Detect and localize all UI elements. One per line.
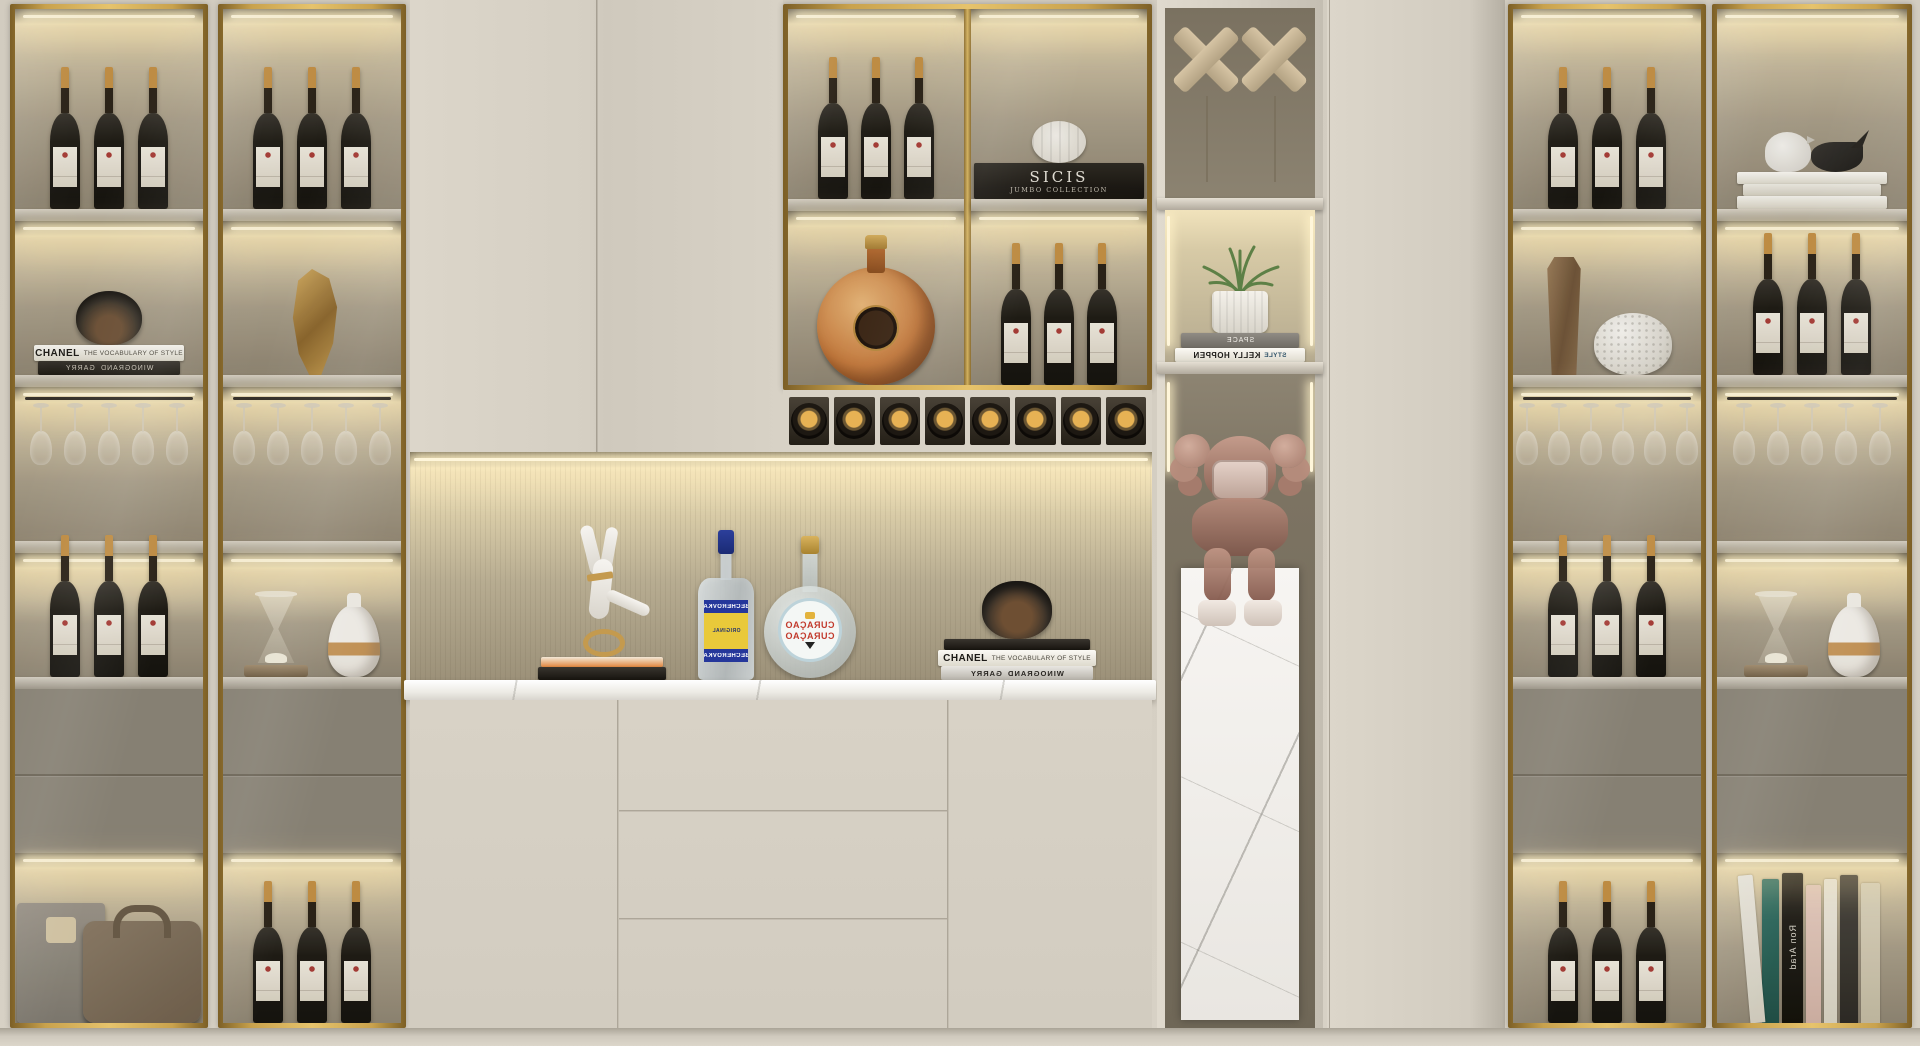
book-ron-arad: Ron Arad [1782, 873, 1803, 1023]
wine-bottle [1592, 927, 1622, 1023]
black-bird [1811, 142, 1863, 172]
shelf-board [223, 209, 401, 221]
niche-plant: SPACE KELLY HOPPENSTYLE [1165, 210, 1315, 362]
led-strip [1725, 859, 1899, 862]
book-orange [541, 657, 663, 667]
shelf-board [971, 199, 1147, 211]
wine-glass [1515, 401, 1539, 493]
wine-bottle [1087, 289, 1117, 385]
book-title: WINOGRAND [100, 365, 153, 372]
led-strip [231, 859, 393, 862]
led-strip [1310, 216, 1313, 346]
curacao-bottle: CURAÇAO CURAÇAO [762, 530, 858, 680]
sicis-book-group: SICISJUMBO COLLECTION [974, 121, 1144, 199]
led-strip [231, 559, 393, 562]
shelf-compartment-decor: CHANELTHE VOCABULARY OF STYLE GARRYWINOG… [15, 221, 203, 380]
wine-rack-slot [834, 397, 874, 445]
book-title: GARRY [65, 365, 95, 372]
led-strip [1725, 15, 1899, 18]
led-strip [414, 458, 1148, 461]
led-strip [231, 393, 393, 396]
shelf-board [1513, 375, 1701, 387]
wine-glass [97, 401, 121, 493]
hourglass [1753, 591, 1799, 675]
book-black: GARRYWINOGRAND [38, 361, 180, 375]
shelf-compartment-books-birds [1717, 9, 1907, 214]
shelf-compartment-wine [223, 9, 401, 214]
wine-glass [368, 401, 392, 493]
drawer-panel [223, 689, 401, 858]
white-gold-vase [328, 605, 380, 677]
wine-glass [232, 401, 256, 493]
hutch-column-right: SICISJUMBO COLLECTION [971, 9, 1147, 385]
shelf-board [223, 541, 401, 553]
wine-glass [1579, 401, 1603, 493]
book-chanel: CHANELTHE VOCABULARY OF STYLE [34, 345, 184, 361]
wine-bottle [1044, 289, 1074, 385]
drawer-seam [1717, 774, 1907, 776]
book-title: SICIS [1030, 168, 1089, 186]
bar-cabinet-wall: CHANELTHE VOCABULARY OF STYLE GARRYWINOG… [0, 0, 1920, 1046]
shelf-compartment-book: SICISJUMBO COLLECTION [971, 9, 1147, 204]
glass-rail [1727, 397, 1897, 400]
shelf-board [788, 199, 964, 211]
open-shelf-tower: SPACE KELLY HOPPENSTYLE [1157, 0, 1323, 1028]
led-strip [1725, 559, 1899, 562]
wine-glass [1732, 401, 1756, 493]
wine-bottle [297, 927, 327, 1023]
wine-bottle [253, 927, 283, 1023]
book-title: GARRY [970, 669, 1002, 678]
becherovka-bottle: BECHEROVKA ORIGINAL BECHEROVKA [698, 530, 754, 680]
wine-glass [1643, 401, 1667, 493]
label-variant: ORIGINAL [712, 628, 740, 634]
shelf-compartment-cognac [788, 211, 964, 385]
led-strip [1521, 227, 1693, 230]
gold-mask-sculpture [279, 269, 345, 375]
display-cabinet-left-2 [218, 4, 406, 1028]
book-title: CHANEL [35, 348, 80, 359]
display-hutch-center: SICISJUMBO COLLECTION [783, 4, 1152, 390]
plant-leaves [1192, 241, 1288, 297]
shelf-board [1717, 375, 1907, 387]
wine-bottle [1636, 581, 1666, 677]
book-garry-winogrand: GARRYWINOGRAND [941, 666, 1093, 680]
shelf-board [1157, 362, 1323, 374]
display-cabinet-right-1 [1508, 4, 1706, 1028]
wine-bottle [1636, 927, 1666, 1023]
wine-rack-slot [789, 397, 829, 445]
wine-bottle [818, 103, 848, 199]
wine-bottle [1592, 113, 1622, 209]
wine-bottle [1548, 113, 1578, 209]
shelf-compartment-decor [1513, 221, 1701, 380]
book-kelly-hoppen: KELLY HOPPENSTYLE [1175, 348, 1305, 362]
leather-briefcase [83, 921, 201, 1023]
wine-bottle [341, 927, 371, 1023]
wine-rack-slot [970, 397, 1010, 445]
book-spine [1824, 879, 1837, 1023]
plant-on-books: SPACE KELLY HOPPENSTYLE [1175, 241, 1305, 362]
cabinet-interior: CHANELTHE VOCABULARY OF STYLE GARRYWINOG… [15, 9, 203, 1023]
bronze-pitcher [1542, 257, 1586, 375]
wine-bottle [138, 581, 168, 677]
wine-glass [266, 401, 290, 493]
drawer-seam [15, 774, 203, 776]
book-title: KELLY HOPPEN [1193, 351, 1260, 360]
hourglass-group [1744, 591, 1808, 677]
led-strip [23, 15, 195, 18]
led-strip [23, 859, 195, 862]
niche-x-decor [1165, 8, 1315, 212]
wine-bottle [1636, 113, 1666, 209]
book-subtitle: THE VOCABULARY OF STYLE [992, 655, 1091, 662]
wine-bottle [1753, 279, 1783, 375]
cognac-bottle [815, 237, 937, 385]
wine-rack-slot [1015, 397, 1055, 445]
wine-glass [165, 401, 189, 493]
drawer-seam [223, 774, 401, 776]
bottle-label: BECHEROVKA ORIGINAL BECHEROVKA [704, 600, 748, 662]
shelf-compartment-wine [1513, 553, 1701, 682]
bird-figurines [1737, 126, 1887, 172]
wine-glass [300, 401, 324, 493]
wine-bottle [1548, 927, 1578, 1023]
wine-glass [1675, 401, 1699, 493]
marble-countertop [404, 680, 1156, 700]
stemware-rack [1717, 387, 1907, 560]
upper-cabinet-doors [410, 0, 783, 452]
book-title: Ron Arad [1788, 925, 1798, 971]
plant-pot [1212, 291, 1268, 333]
shelf-compartment-wine [971, 211, 1147, 385]
book-stack: CHANELTHE VOCABULARY OF STYLE GARRYWINOG… [34, 291, 184, 375]
wine-glass [334, 401, 358, 493]
book-title: CHANEL [943, 653, 988, 664]
glass-rail [25, 397, 193, 400]
drawer-panel [15, 689, 203, 858]
cabinet-seam [617, 700, 619, 1028]
wine-bottle [1592, 581, 1622, 677]
led-strip [1521, 15, 1693, 18]
led-strip [1167, 216, 1170, 346]
cabinet-interior [1513, 9, 1701, 1023]
wine-bottle [341, 113, 371, 209]
book-title: SPACE [1226, 337, 1254, 344]
niche-art-figure [1165, 374, 1315, 1028]
gold-mullion [964, 9, 971, 385]
book-chanel: CHANELTHE VOCABULARY OF STYLE [938, 650, 1096, 666]
led-strip [23, 393, 195, 396]
book-accent: STYLE [1264, 352, 1286, 359]
book-sicis: SICISJUMBO COLLECTION [974, 163, 1144, 199]
bottle-label: CURAÇAO CURAÇAO [778, 598, 842, 662]
book-white [1743, 184, 1881, 196]
wine-bottle [297, 113, 327, 209]
drawer-panel [1513, 689, 1701, 858]
led-strip [1167, 382, 1170, 472]
wine-bottle [904, 103, 934, 199]
shelf-board [1513, 209, 1701, 221]
shelf-board [15, 677, 203, 689]
wine-glass [63, 401, 87, 493]
display-cabinet-left-1: CHANELTHE VOCABULARY OF STYLE GARRYWINOG… [10, 4, 208, 1028]
bottle-cap [718, 530, 734, 554]
label-brand: BECHEROVKA [704, 653, 748, 659]
shelf-compartment-decor [223, 221, 401, 380]
shelf-compartment-books: Ron Arad [1717, 853, 1907, 1023]
book-white [1737, 196, 1887, 209]
shelf-board [1157, 198, 1323, 210]
wine-rack-slot [1106, 397, 1146, 445]
bar-alcove: BECHEROVKA ORIGINAL BECHEROVKA CURAÇAO C… [410, 452, 1152, 680]
floor-plinth [0, 1028, 1920, 1046]
label-line: CURAÇAO [785, 620, 835, 630]
book-spine [1840, 875, 1858, 1023]
bottle-neck [721, 554, 732, 580]
cabinet-seam [947, 700, 949, 1028]
book-space: SPACE [1181, 333, 1299, 348]
wine-glass [1766, 401, 1790, 493]
led-strip [1725, 227, 1899, 230]
book-white [1737, 172, 1887, 184]
textured-vase [1594, 313, 1672, 375]
book-black [538, 667, 666, 680]
book-title: WINOGRAND [1007, 669, 1064, 678]
drawer-panel [1717, 689, 1907, 858]
shelf-board [1513, 677, 1701, 689]
drawer-seam [1513, 774, 1701, 776]
stemware-rack [223, 387, 401, 560]
shelf-compartment-wine [15, 553, 203, 682]
tall-cabinet-door [1327, 0, 1505, 1028]
shelf-board [1717, 541, 1907, 553]
led-strip [796, 217, 956, 220]
wine-bottle [94, 113, 124, 209]
wine-bottle [1797, 279, 1827, 375]
wine-bottle [50, 113, 80, 209]
led-strip [1310, 382, 1313, 472]
sculpture-on-books [538, 525, 666, 680]
kaws-figure [1174, 428, 1306, 638]
led-strip [231, 15, 393, 18]
glass-rail [1523, 397, 1691, 400]
pumpkin-decor [1032, 121, 1086, 163]
label-line: CURAÇAO [785, 631, 835, 641]
led-strip [1725, 393, 1899, 396]
led-strip [23, 227, 195, 230]
books-with-birds [1737, 126, 1887, 209]
cabinet-interior: Ron Arad [1717, 9, 1907, 1023]
shelf-board [1717, 677, 1907, 689]
glass-rail [233, 397, 391, 400]
led-strip [979, 15, 1139, 18]
shelf-compartment-wine [15, 9, 203, 214]
white-gold-vase [1828, 605, 1880, 677]
hourglass-group [244, 591, 308, 677]
handstand-figurine [547, 525, 657, 657]
wine-rack-slot [925, 397, 965, 445]
shelf-compartment-wine [788, 9, 964, 204]
hourglass [253, 591, 299, 675]
wine-bottle [253, 113, 283, 209]
wine-bottle [138, 113, 168, 209]
wine-rack [783, 390, 1152, 452]
shelf-compartment-decor [223, 553, 401, 682]
led-strip [979, 217, 1139, 220]
wine-bottle [1548, 581, 1578, 677]
drawer-seam [619, 918, 947, 920]
wine-bottle [1841, 279, 1871, 375]
wine-bottle [861, 103, 891, 199]
wine-glass [1611, 401, 1635, 493]
bottle-cap [801, 536, 819, 554]
wine-glass [1868, 401, 1892, 493]
led-strip [796, 15, 956, 18]
wine-glass [1547, 401, 1571, 493]
wine-rack-slot [880, 397, 920, 445]
shelf-board [223, 375, 401, 387]
shelf-board [15, 209, 203, 221]
cabinet-interior [223, 9, 401, 1023]
led-strip [231, 227, 393, 230]
base-cabinet [410, 700, 1152, 1028]
drawer-seam [619, 810, 947, 812]
wine-bottle [1001, 289, 1031, 385]
led-strip [1521, 393, 1693, 396]
wine-glass [1834, 401, 1858, 493]
shelf-compartment-decor [1717, 553, 1907, 682]
dark-bowl [76, 291, 142, 345]
wine-glass [131, 401, 155, 493]
shelf-compartment-wine [1717, 221, 1907, 380]
wine-glass [29, 401, 53, 493]
shelf-compartment-wine [1513, 9, 1701, 214]
smoked-glass-bowl [982, 581, 1052, 639]
x-decor [1173, 22, 1239, 182]
wine-rack-slot [1061, 397, 1101, 445]
shelf-board [15, 375, 203, 387]
book-subtitle: JUMBO COLLECTION [1010, 186, 1108, 194]
display-cabinet-right-2: Ron Arad [1712, 4, 1912, 1028]
book-spine [1762, 879, 1779, 1023]
shelf-board [223, 677, 401, 689]
white-bird [1765, 132, 1811, 172]
shelf-compartment-wine [1513, 853, 1701, 1023]
shelf-board [1717, 209, 1907, 221]
book-black [944, 639, 1090, 650]
cabinet-interior: SICISJUMBO COLLECTION [788, 9, 1147, 385]
book-spine [1806, 885, 1821, 1023]
wine-glass [1800, 401, 1824, 493]
x-decor [1241, 22, 1307, 182]
book-spine [1861, 883, 1880, 1023]
shelf-compartment-wine [223, 853, 401, 1023]
books-with-bowl: CHANELTHE VOCABULARY OF STYLE GARRYWINOG… [938, 581, 1096, 680]
wine-bottle [94, 581, 124, 677]
shelf-compartment-bags [15, 853, 203, 1023]
hutch-column-left [788, 9, 964, 385]
label-brand: BECHEROVKA [704, 604, 748, 610]
led-strip [1521, 859, 1693, 862]
wine-bottle [50, 581, 80, 677]
book-subtitle: THE VOCABULARY OF STYLE [84, 350, 183, 357]
